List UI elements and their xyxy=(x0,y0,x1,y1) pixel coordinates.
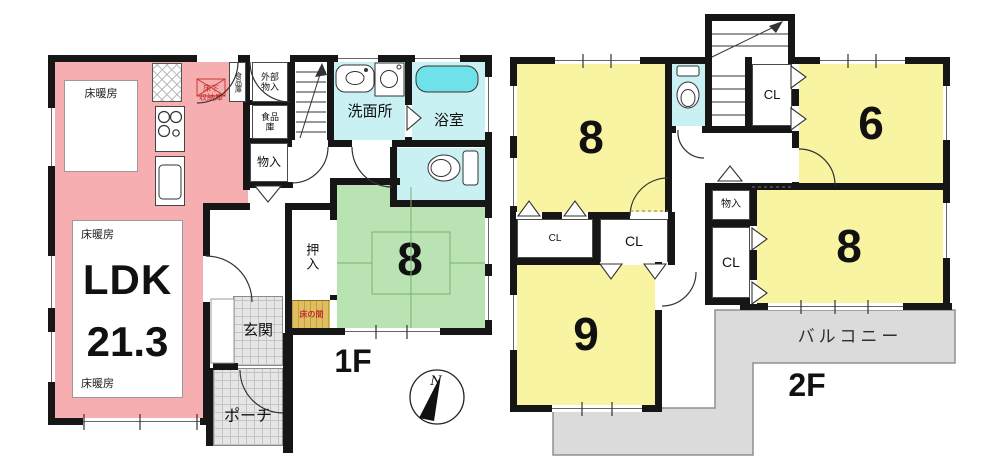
window xyxy=(555,57,640,64)
door-opening xyxy=(792,106,799,131)
door-opening xyxy=(405,105,412,137)
closet-label: CL xyxy=(625,233,643,249)
window xyxy=(485,218,492,264)
kitchen-storage-unit xyxy=(152,63,182,102)
stairs-1f xyxy=(296,63,327,138)
door-opening xyxy=(197,55,238,62)
window xyxy=(943,86,950,140)
floor-heating-label: 床暖房 xyxy=(81,375,114,391)
window xyxy=(338,55,378,62)
door-opening xyxy=(352,140,392,147)
toilet-room-2f xyxy=(672,64,705,126)
closet-label: CL xyxy=(764,88,781,103)
window xyxy=(485,77,492,132)
window xyxy=(552,405,642,412)
ldk-area-label: 21.3 xyxy=(73,313,182,371)
entrance-label: 玄関 xyxy=(236,320,280,342)
balcony-label: バルコニー xyxy=(770,325,930,349)
wall xyxy=(705,57,712,133)
wall xyxy=(510,258,600,265)
wall xyxy=(213,363,238,370)
porch-label: ポーチ xyxy=(216,406,280,428)
compass-icon: N xyxy=(410,370,464,424)
floor-heating-label: 床暖房 xyxy=(65,85,137,101)
wall xyxy=(245,182,293,188)
wall xyxy=(705,183,950,190)
floor-heating-zone: 床暖房 xyxy=(64,80,138,172)
floor-heating-label: 床暖房 xyxy=(81,226,114,242)
door-opening xyxy=(676,126,702,133)
wall xyxy=(705,183,712,305)
storage-2f-label: 物入 xyxy=(721,199,741,211)
closet-opening xyxy=(562,212,588,219)
window xyxy=(415,55,460,62)
window xyxy=(820,57,905,64)
window xyxy=(510,158,517,206)
stove-counter xyxy=(155,106,185,152)
closet-sw-b: CL xyxy=(600,219,668,262)
room9-sw-label: 9 xyxy=(517,265,655,405)
window xyxy=(48,108,55,166)
sink-counter xyxy=(155,156,185,206)
window xyxy=(485,276,492,320)
floor-plan: 床暖房 床暖房 LDK 21.3 床暖房 床下 収納庫 食品庫 外部 物入 食品… xyxy=(0,0,1000,476)
door-opening xyxy=(792,148,799,182)
exterior-storage: 外部 物入 xyxy=(252,62,288,102)
closet-label: CL xyxy=(722,254,740,270)
tatami-size-label: 8 xyxy=(335,190,485,330)
pantry-narrow: 食品庫 xyxy=(229,62,246,102)
bathroom-label: 浴室 xyxy=(414,108,484,134)
underfloor-storage-line2: 収納庫 xyxy=(199,94,223,103)
wall xyxy=(283,333,293,453)
door-opening xyxy=(292,140,328,147)
room8-nw-label: 8 xyxy=(517,64,665,212)
underfloor-storage-label: 床下 収納庫 xyxy=(188,82,234,106)
wall xyxy=(665,57,672,219)
wall xyxy=(668,212,675,265)
pantry: 食品 庫 xyxy=(252,105,288,139)
wall xyxy=(745,57,752,133)
window xyxy=(943,203,950,258)
closet-mid: CL xyxy=(712,227,750,298)
entrance-step xyxy=(211,299,234,363)
pantry-line2: 庫 xyxy=(265,122,274,132)
door-opening xyxy=(655,270,662,310)
window xyxy=(48,256,55,308)
closet-label: CL xyxy=(549,233,562,245)
window xyxy=(768,303,903,310)
wall xyxy=(203,203,250,210)
oshiire-label: 押入 xyxy=(296,222,326,292)
floor-heating-zone: 床暖房 LDK 21.3 床暖房 xyxy=(72,220,183,398)
closet-opening xyxy=(516,212,542,219)
floor1-title: 1F xyxy=(324,344,382,380)
wall xyxy=(206,368,213,446)
floor2-title: 2F xyxy=(778,368,836,404)
window xyxy=(510,295,517,350)
pantry-line1: 食品 xyxy=(261,112,279,122)
window xyxy=(510,86,517,136)
storage-2f: 物入 xyxy=(712,190,750,220)
window xyxy=(83,418,200,425)
ldk-label: LDK xyxy=(73,251,182,309)
door-opening xyxy=(250,55,290,62)
wall xyxy=(593,212,600,265)
window xyxy=(48,332,55,382)
wall xyxy=(330,178,400,185)
room8-e-label: 8 xyxy=(755,190,943,303)
closet-top: CL xyxy=(752,64,792,126)
storage-1f-label: 物入 xyxy=(257,156,281,170)
wall xyxy=(285,203,335,210)
wall xyxy=(705,14,795,21)
room6-ne-label: 6 xyxy=(799,64,943,183)
wall xyxy=(327,55,334,145)
closet-sw-a: CL xyxy=(517,219,593,258)
exterior-storage-line2: 物入 xyxy=(261,82,279,92)
door-opening xyxy=(203,256,210,302)
pantry-narrow-label: 食品庫 xyxy=(233,72,241,93)
wall xyxy=(705,220,755,227)
compass-north-label: N xyxy=(429,374,442,389)
door-opening xyxy=(630,212,668,219)
tokonoma-label: 床の間 xyxy=(291,300,332,330)
door-opening xyxy=(792,64,799,89)
exterior-storage-line1: 外部 xyxy=(261,72,279,82)
storage-1f: 物入 xyxy=(250,143,288,182)
washroom-label: 洗面所 xyxy=(334,99,406,125)
